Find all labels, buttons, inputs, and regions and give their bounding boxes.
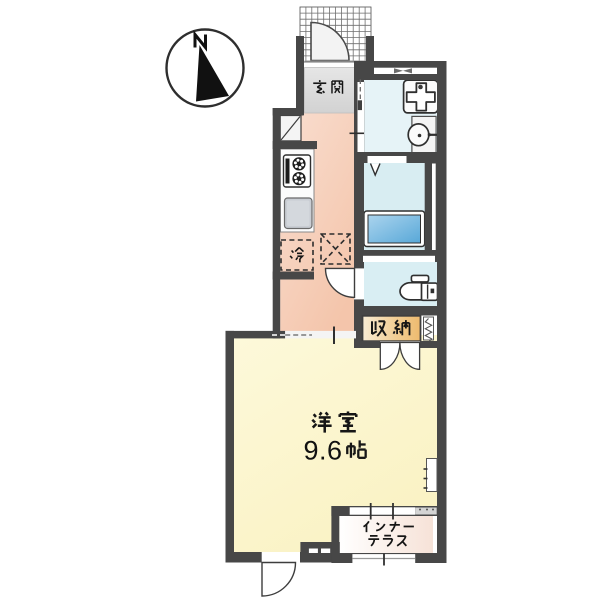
svg-text:9.6: 9.6: [304, 436, 343, 466]
